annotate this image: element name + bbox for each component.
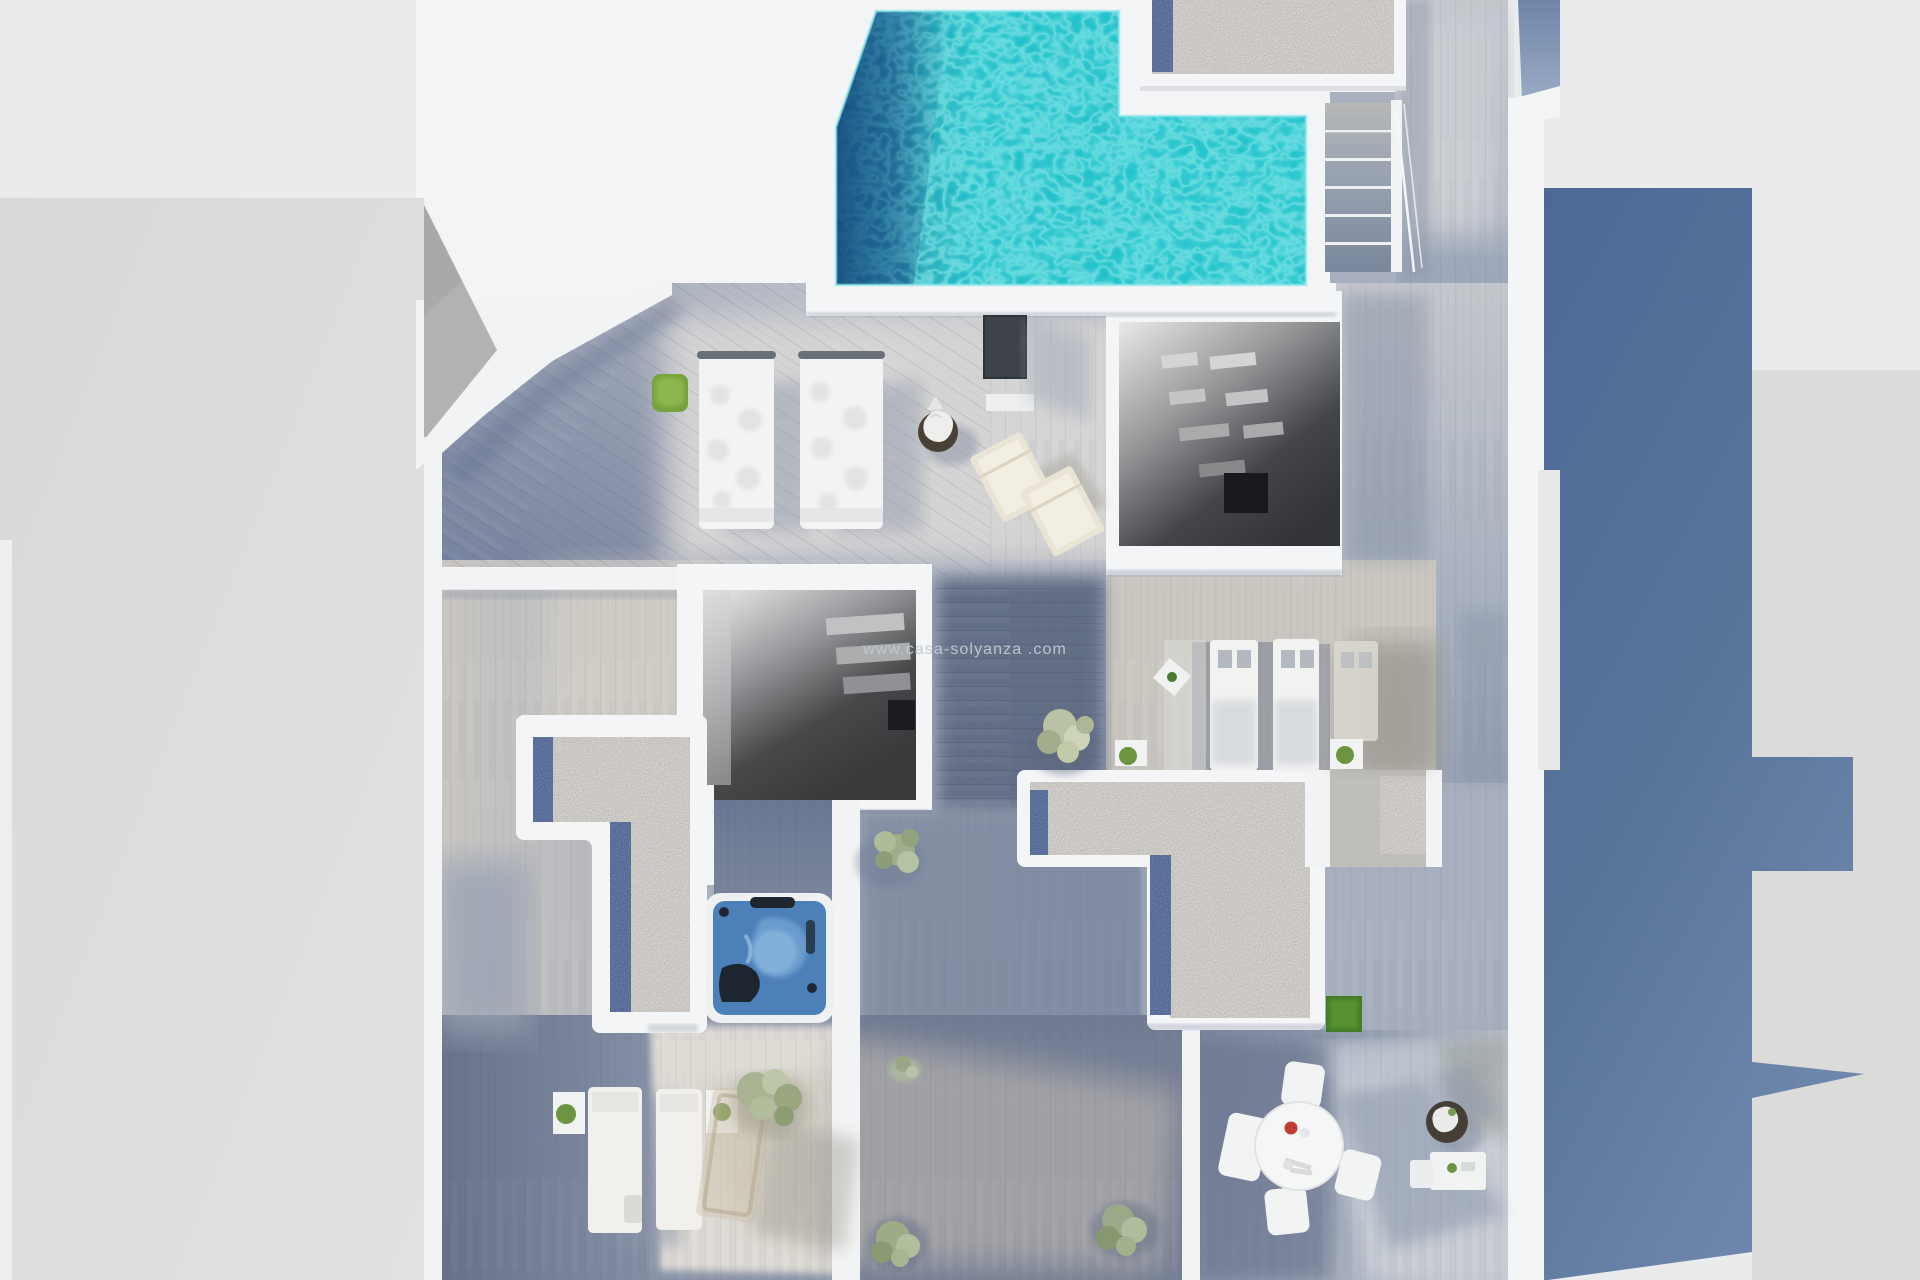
svg-text:www.casa-solyanza .com: www.casa-solyanza .com [862,641,1067,658]
